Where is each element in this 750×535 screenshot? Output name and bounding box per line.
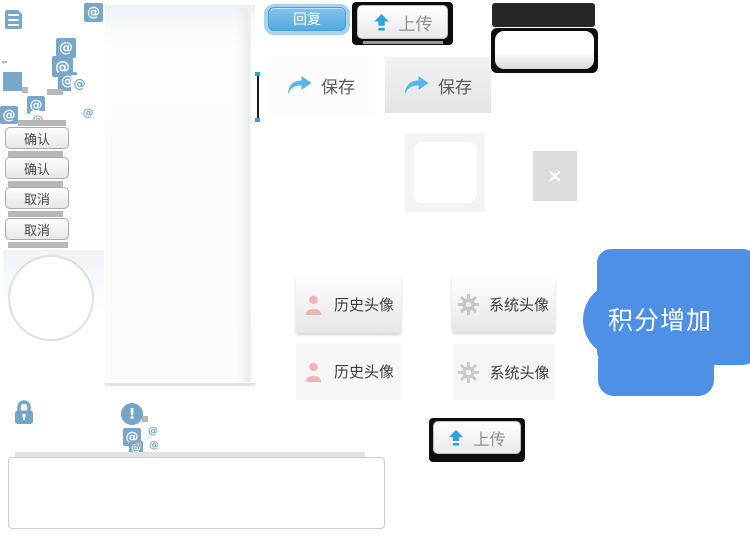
gray-square — [142, 416, 148, 422]
blue-square — [3, 72, 22, 91]
history-avatar-button[interactable]: 历史头像 — [296, 343, 401, 400]
gray-bar — [47, 89, 63, 95]
framed-button-frame — [491, 28, 598, 73]
gray-bar — [18, 120, 66, 126]
confirm-label: 确认 — [24, 159, 50, 178]
reply-button-halo: 回复 — [264, 4, 350, 35]
history-avatar-label: 历史头像 — [334, 361, 394, 382]
exclamation-icon: ! — [121, 403, 143, 425]
person-icon — [303, 294, 324, 315]
upload-label: 上传 — [473, 426, 505, 450]
close-button[interactable]: × — [533, 151, 577, 201]
upload-button[interactable]: 上传 — [433, 421, 521, 454]
scroll-panel — [105, 5, 255, 386]
gear-icon — [458, 294, 479, 315]
confirm-button[interactable]: 确认 — [5, 127, 69, 149]
blank-framed-button[interactable] — [495, 31, 594, 69]
frame-inner-shadow — [363, 41, 443, 44]
upload-arrow-icon — [448, 430, 464, 446]
panel-bottom-edge — [105, 383, 255, 386]
at-icon: @ — [80, 104, 96, 120]
upload-button[interactable]: 上传 — [357, 5, 448, 39]
at-icon: @ — [0, 106, 18, 124]
upload-button-frame: 上传 — [429, 418, 525, 462]
sprite-canvas: @ @ @ @ @ @ @ @ @ 确认 确认 取消 取消 ! @ @ @ @ — [0, 0, 750, 535]
save-label: 保存 — [438, 73, 472, 98]
save-button[interactable]: 保存 — [385, 57, 491, 113]
confirm-button[interactable]: 确认 — [5, 157, 69, 179]
system-avatar-label: 系统头像 — [489, 362, 549, 383]
at-icon: @ — [56, 38, 76, 58]
avatar-panel — [3, 250, 104, 351]
button-shadow-bar — [8, 242, 68, 248]
at-icon: @ — [84, 3, 103, 22]
upload-button-frame: 上传 — [352, 2, 453, 45]
upload-label: 上传 — [399, 10, 433, 35]
caret-handle-top[interactable] — [255, 72, 260, 76]
lock-icon — [13, 399, 35, 425]
avatar-square-frame — [405, 133, 485, 212]
at-icon: @ — [71, 75, 88, 92]
system-avatar-label: 系统头像 — [489, 294, 549, 315]
close-icon: × — [547, 165, 563, 187]
save-label: 保存 — [321, 73, 355, 98]
gear-icon — [458, 362, 479, 383]
hamburger-menu-icon — [5, 10, 22, 29]
at-icon: @ — [146, 424, 160, 438]
person-icon — [303, 361, 324, 382]
points-bubble-label: 积分增加 — [608, 301, 712, 337]
avatar-square-placeholder[interactable] — [414, 142, 477, 203]
avatar-circle-placeholder[interactable] — [8, 255, 94, 341]
cancel-button[interactable]: 取消 — [5, 187, 69, 209]
scrollbar-track[interactable] — [238, 8, 251, 382]
forward-arrow-icon — [404, 76, 429, 95]
confirm-label: 确认 — [24, 129, 50, 148]
at-icon: @ — [147, 438, 161, 452]
reply-button[interactable]: 回复 — [268, 7, 346, 31]
text-caret — [257, 76, 259, 119]
gray-square — [22, 87, 28, 93]
cancel-label: 取消 — [24, 220, 50, 239]
button-shadow-bar — [8, 211, 63, 217]
reply-label: 回复 — [293, 9, 321, 29]
caret-handle-bottom[interactable] — [255, 118, 260, 122]
system-avatar-button[interactable]: 系统头像 — [453, 344, 555, 400]
system-avatar-button[interactable]: 系统头像 — [452, 277, 555, 332]
forward-arrow-icon — [287, 76, 312, 95]
folded-corner — [18, 10, 22, 14]
gray-dash — [2, 61, 7, 63]
comment-textarea[interactable] — [8, 457, 385, 529]
save-button[interactable]: 保存 — [268, 57, 374, 113]
history-avatar-label: 历史头像 — [334, 294, 394, 315]
cancel-label: 取消 — [24, 189, 50, 208]
gray-square — [136, 442, 141, 447]
bubble-tail — [598, 358, 714, 396]
cancel-button[interactable]: 取消 — [5, 218, 69, 240]
history-avatar-button[interactable]: 历史头像 — [296, 276, 401, 333]
black-bar — [492, 3, 595, 27]
upload-arrow-icon — [373, 14, 390, 31]
